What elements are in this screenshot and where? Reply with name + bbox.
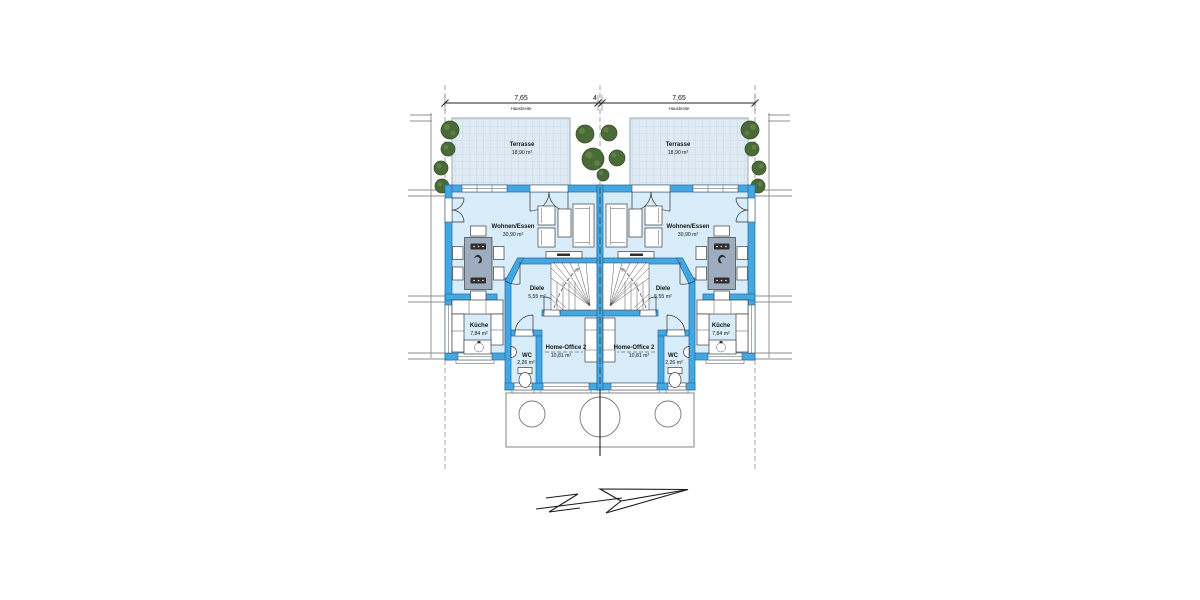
room-label-kueche: Küche bbox=[470, 323, 489, 329]
armchair bbox=[538, 206, 555, 225]
tree-icon bbox=[609, 150, 625, 166]
coffee-table bbox=[558, 209, 571, 237]
room-label-home-office: Home-Office 2 bbox=[546, 345, 587, 351]
room-area-kueche: 7,84 m² bbox=[712, 331, 730, 337]
room-label-wc: WC bbox=[668, 353, 679, 359]
tree-icon bbox=[441, 121, 459, 139]
room-area-home-office: 10,81 m² bbox=[629, 353, 650, 359]
dimension-right-width: 7,65 bbox=[672, 95, 686, 102]
forecourt-circle-right bbox=[655, 401, 681, 427]
tree-icon bbox=[597, 169, 609, 181]
room-label-diele: Diele bbox=[656, 286, 671, 292]
chair bbox=[453, 267, 464, 280]
window-living-top bbox=[462, 185, 507, 192]
room-area-diele: 5,55 m² bbox=[654, 294, 672, 300]
room-area-diele: 5,55 m² bbox=[528, 294, 546, 300]
chair bbox=[494, 267, 505, 280]
tree-icon bbox=[582, 148, 604, 170]
room-label-wohnen-essen: Wohnen/Essen bbox=[667, 224, 710, 230]
dimension-left-label: Hausbreite bbox=[511, 106, 532, 111]
chair bbox=[471, 226, 487, 236]
forecourt-circle-left bbox=[519, 401, 545, 427]
forecourt bbox=[506, 390, 694, 456]
room-area-terrasse: 18,90 m² bbox=[668, 150, 689, 156]
room-area-wc: 2,26 m² bbox=[665, 360, 683, 366]
room-label-diele: Diele bbox=[530, 286, 545, 292]
tree-cluster-center bbox=[576, 125, 625, 181]
site-boundary-lines bbox=[408, 85, 445, 470]
chair bbox=[471, 291, 487, 301]
sofa bbox=[573, 204, 594, 247]
tree-icon bbox=[441, 142, 455, 156]
tree-icon bbox=[576, 125, 594, 143]
dimension-right-label: Hausbreite bbox=[669, 106, 690, 111]
floorplan-canvas: 7,65 Hausbreite 4 7,65 Hausbreite Terras… bbox=[0, 0, 1200, 600]
dimension-left-width: 7,65 bbox=[514, 95, 528, 102]
window-home-office bbox=[541, 383, 591, 394]
room-area-terrasse: 18,90 m² bbox=[512, 150, 533, 156]
window-kitchen-side bbox=[445, 305, 452, 353]
wall-corridor-side bbox=[505, 278, 511, 390]
window-kitchen-bottom bbox=[456, 353, 494, 364]
room-label-home-office: Home-Office 2 bbox=[614, 345, 655, 351]
room-label-terrasse: Terrasse bbox=[510, 142, 535, 148]
tree-icon bbox=[434, 161, 448, 175]
armchair bbox=[538, 228, 555, 247]
room-label-wc: WC bbox=[522, 353, 533, 359]
room-label-terrasse: Terrasse bbox=[666, 142, 691, 148]
chair bbox=[494, 247, 505, 260]
dimension-gap: 4 bbox=[593, 95, 597, 102]
wall-wc-office bbox=[536, 336, 542, 383]
toilet bbox=[519, 373, 531, 388]
room-area-wohnen-essen: 30,90 m² bbox=[503, 232, 524, 238]
room-area-kueche: 7,84 m² bbox=[470, 331, 488, 337]
chair bbox=[453, 247, 464, 260]
room-label-wohnen-essen: Wohnen/Essen bbox=[492, 224, 535, 230]
staircase bbox=[551, 263, 597, 310]
tree-icon bbox=[601, 125, 617, 141]
north-arrow-icon bbox=[536, 489, 688, 513]
room-area-home-office: 10,81 m² bbox=[551, 353, 572, 359]
room-label-kueche: Küche bbox=[712, 323, 731, 329]
room-area-wc: 2,26 m² bbox=[517, 360, 535, 366]
room-area-wohnen-essen: 30,90 m² bbox=[678, 232, 699, 238]
floorplan-page: 7,65 Hausbreite 4 7,65 Hausbreite Terras… bbox=[0, 0, 1200, 600]
